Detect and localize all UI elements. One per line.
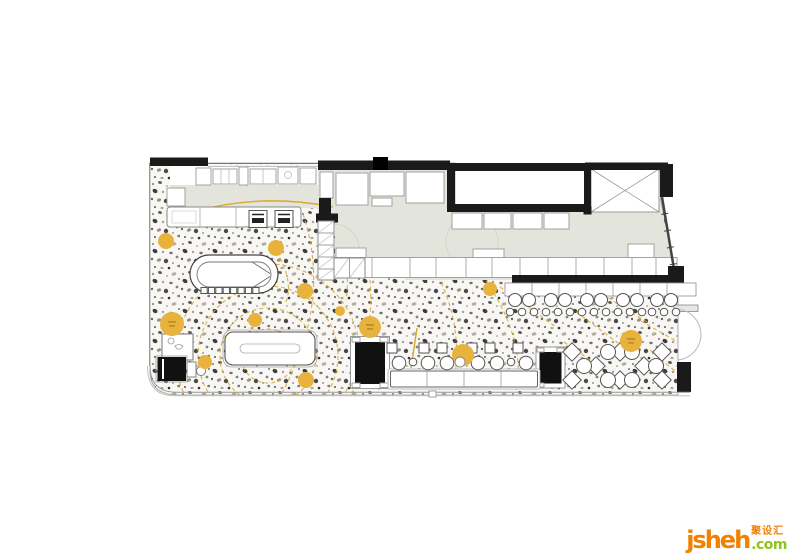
floor-plan-svg — [0, 0, 790, 559]
dj-booth — [351, 337, 390, 389]
gold-accent-circle — [359, 316, 381, 338]
gold-accent-circle — [335, 306, 345, 316]
oval-bar — [190, 255, 278, 294]
page-canvas: jsheh 聚设汇 .com — [0, 0, 790, 559]
watermark-brand: jsheh — [686, 528, 749, 552]
gold-accent-circle — [483, 282, 497, 296]
watermark-tld: .com — [751, 538, 787, 552]
watermark-chinese: 聚设汇 — [751, 527, 784, 537]
gold-accent-circle — [160, 312, 184, 336]
right-bar-counter — [505, 275, 696, 296]
gold-accent-circle — [268, 240, 284, 256]
gold-accent-circle — [297, 283, 313, 299]
gold-accent-circle — [198, 355, 212, 369]
watermark: jsheh 聚设汇 .com — [686, 527, 787, 552]
accent-overlay-stool — [455, 357, 465, 367]
gold-accent-circle — [620, 330, 642, 352]
gold-accent-circle — [158, 233, 174, 249]
gold-accent-circle — [298, 372, 314, 388]
watermark-right: 聚设汇 .com — [751, 527, 787, 552]
gold-accent-circle — [248, 313, 262, 327]
communal-table — [223, 330, 317, 367]
shaft-box — [591, 169, 659, 212]
